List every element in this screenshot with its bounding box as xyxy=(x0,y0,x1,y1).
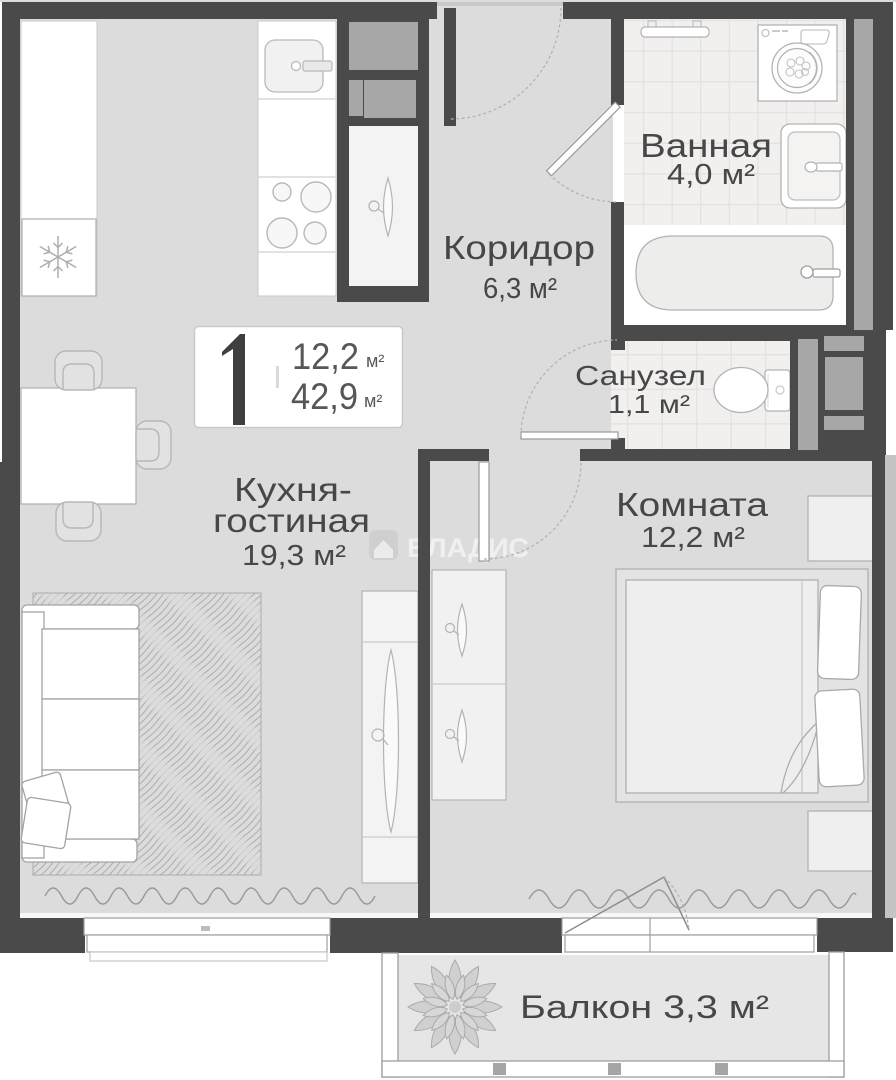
svg-text:м²: м² xyxy=(364,391,382,411)
svg-text:Коридор: Коридор xyxy=(443,229,595,266)
svg-text:Балкон 3,3 м²: Балкон 3,3 м² xyxy=(520,989,769,1025)
svg-text:12,2: 12,2 xyxy=(292,336,359,377)
svg-text:19,3 м²: 19,3 м² xyxy=(242,540,346,572)
svg-text:Комната: Комната xyxy=(616,486,769,523)
svg-text:4,0 м²: 4,0 м² xyxy=(667,159,755,191)
svg-text:42,9: 42,9 xyxy=(291,376,358,417)
svg-text:м²: м² xyxy=(366,351,384,371)
svg-text:6,3 м²: 6,3 м² xyxy=(483,273,557,305)
svg-text:12,2 м²: 12,2 м² xyxy=(641,522,745,554)
svg-text:гостиная: гостиная xyxy=(213,502,370,539)
svg-text:1,1 м²: 1,1 м² xyxy=(608,389,690,419)
svg-text:Санузел: Санузел xyxy=(575,360,706,391)
